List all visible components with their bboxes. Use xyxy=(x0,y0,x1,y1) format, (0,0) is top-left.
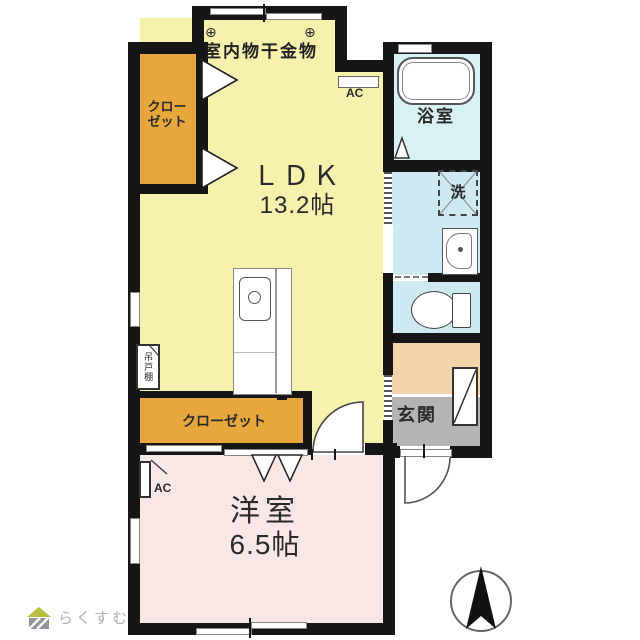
door-jamb-tick xyxy=(311,449,313,460)
toilet-icon xyxy=(411,291,457,329)
wall-segment xyxy=(128,184,208,194)
door-jamb-tick xyxy=(334,449,336,460)
sliding-door-track xyxy=(146,445,222,452)
logo: らくすむ xyxy=(26,605,186,635)
closet-upper-label: クローゼット xyxy=(137,88,197,142)
anchor-symbol: ⊕ xyxy=(304,24,316,40)
entry-door-arc-icon xyxy=(400,456,456,508)
laundry-label: 洗 xyxy=(440,172,476,214)
closet-door-icon xyxy=(200,58,240,104)
window-mark xyxy=(196,628,252,635)
indoor-drying-label: 室内物干金物 xyxy=(204,42,318,62)
ac-label: AC xyxy=(346,87,363,101)
wall-segment xyxy=(383,333,480,343)
window-mark xyxy=(251,622,307,629)
toilet-tank-icon xyxy=(452,293,471,328)
washer-icon: 洗 xyxy=(438,170,478,216)
toilet-door-line xyxy=(395,276,428,278)
window-mark xyxy=(130,292,140,327)
ldk-name: ＬＤＫ xyxy=(253,161,343,192)
open-boundary-hatch xyxy=(384,172,392,225)
window-mark xyxy=(398,44,432,53)
western-room-label: 洋室 6.5帖 xyxy=(160,488,370,568)
bath-door-icon xyxy=(393,136,411,160)
floor-plan: 洗 吊戸棚 AC AC ⊕ ⊕ 室内物干金物 クローゼット ＬＤＫ 13.2帖 … xyxy=(0,0,640,640)
anchor-symbol: ⊕ xyxy=(205,24,217,40)
window-mark xyxy=(130,518,140,564)
entrance-label: 玄関 xyxy=(397,405,437,426)
wall-segment xyxy=(480,42,492,458)
window-mark xyxy=(210,8,266,15)
western-size: 6.5帖 xyxy=(230,529,301,561)
open-boundary-hatch xyxy=(384,375,392,420)
washbasin-icon xyxy=(442,228,478,275)
hanging-cupboard-icon: 吊戸棚 xyxy=(136,344,160,390)
logo-text: らくすむ xyxy=(58,610,130,627)
wall-segment xyxy=(383,420,393,448)
hanging-cupboard-label: 吊戸棚 xyxy=(138,346,158,388)
compass-icon xyxy=(448,561,516,639)
window-mark xyxy=(266,13,322,20)
ac-unit-icon xyxy=(139,461,151,498)
bathroom-label: 浴室 xyxy=(392,105,480,129)
wall-segment xyxy=(383,273,393,375)
folding-door-icon xyxy=(251,454,305,484)
kitchen-counter-icon xyxy=(233,268,292,395)
window-center-tick xyxy=(263,4,265,22)
house-icon xyxy=(26,605,53,632)
window-center-tick xyxy=(249,618,251,638)
faucet-icon xyxy=(248,291,261,304)
wall-segment xyxy=(383,443,395,635)
ac-mount-line xyxy=(151,458,169,476)
closet-lower-label: クローゼット xyxy=(142,402,306,440)
bathtub-icon xyxy=(397,57,475,105)
western-name: 洋室 xyxy=(230,495,300,530)
shoe-cabinet-icon xyxy=(452,367,478,426)
entrance-step-line xyxy=(390,394,452,397)
ldk-label: ＬＤＫ 13.2帖 xyxy=(225,155,370,225)
door-opening xyxy=(383,225,393,273)
ldk-size: 13.2帖 xyxy=(260,192,336,220)
